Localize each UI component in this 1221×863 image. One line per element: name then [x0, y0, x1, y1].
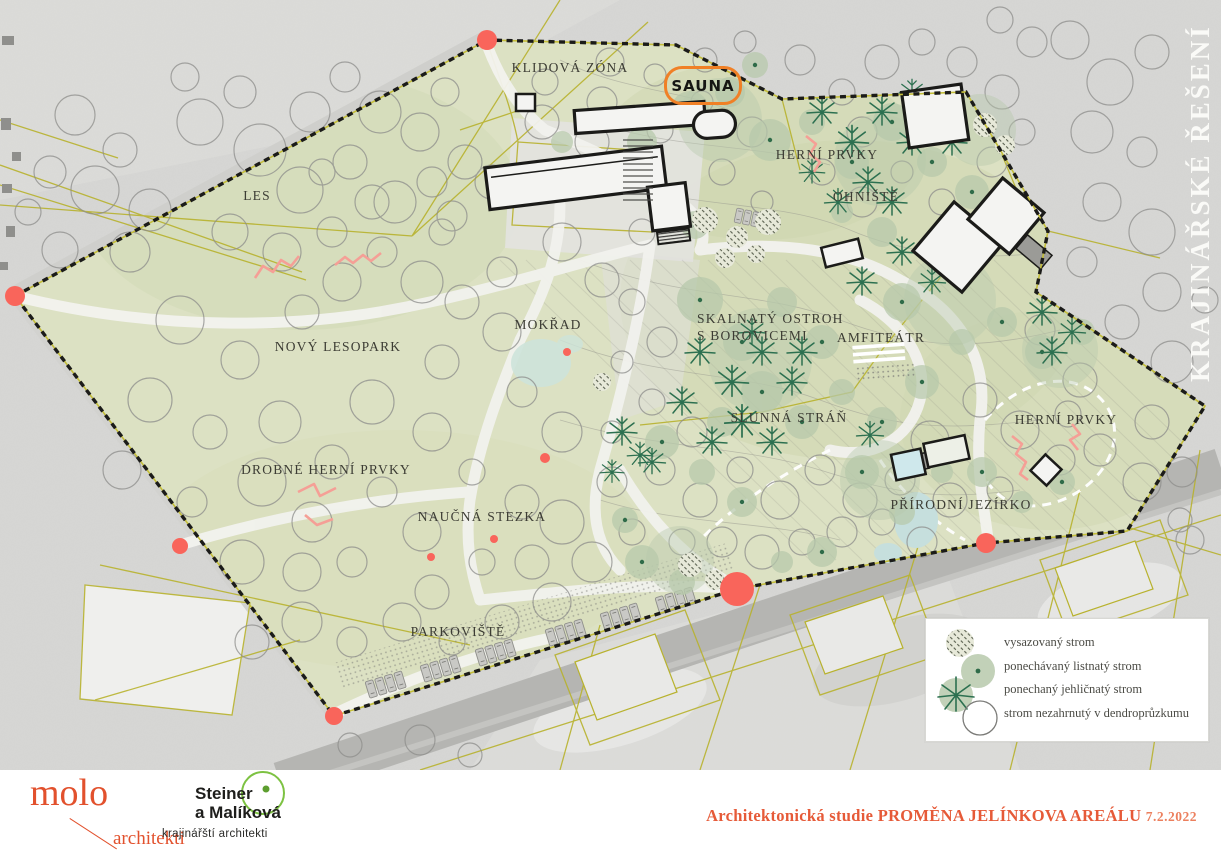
project-date: 7.2.2022	[1146, 809, 1197, 824]
label-ohniste: OHNIŠTĚ	[833, 189, 899, 205]
label-herni-prvky-right: HERNÍ PRVKY	[1015, 412, 1118, 428]
molo-logo-name: molo	[30, 774, 108, 812]
planted-tree-icon	[946, 629, 974, 657]
legend-item-coniferous: ponechaný jehličnatý strom	[1004, 682, 1142, 697]
label-prirodni-jezirko: PŘÍRODNÍ JEZÍRKO	[890, 497, 1031, 513]
label-skalnaty-ostroh-line2: S BOROVICEMI	[697, 328, 808, 344]
label-skalnaty-ostroh-line1: SKALNATÝ OSTROH	[697, 311, 844, 327]
label-amfiteatr: AMFITEÁTR	[837, 330, 925, 346]
site-plan-page: KLIDOVÁ ZÓNA HERNÍ PRVKY OHNIŠTĚ LES NOV…	[0, 0, 1221, 863]
project-title: Architektonická studie PROMĚNA JELÍNKOVA…	[706, 806, 1197, 826]
footer: molo architekti Steiner a Malíková kraji…	[0, 770, 1221, 863]
sauna-badge: SAUNA	[664, 66, 742, 105]
project-title-prefix: Architektonická studie	[706, 806, 878, 825]
label-naucna-stezka: NAUČNÁ STEZKA	[418, 509, 546, 525]
steiner-logo-line1: Steiner	[195, 784, 253, 804]
steiner-malikova-logo: Steiner a Malíková krajinářští architekt…	[160, 770, 340, 860]
unsurveyed-tree-icon	[963, 701, 997, 735]
steiner-logo-subtitle: krajinářští architekti	[162, 828, 268, 840]
label-les: LES	[243, 188, 271, 204]
molo-logo-line	[69, 818, 117, 849]
legend-item-planted: vysazovaný strom	[1004, 635, 1095, 650]
legend: vysazovaný strom ponechávaný listnatý st…	[925, 618, 1209, 742]
legend-item-deciduous: ponechávaný listnatý strom	[1004, 659, 1141, 674]
legend-icons	[934, 625, 1000, 737]
label-slunna-stran: SLUNNÁ STRÁŇ	[731, 410, 848, 426]
label-mokrad: MOKŘAD	[514, 317, 581, 333]
label-drobne-herni-prvky: DROBNÉ HERNÍ PRVKY	[241, 462, 411, 478]
project-title-name: PROMĚNA JELÍNKOVA AREÁLU	[878, 806, 1142, 825]
sauna-badge-label: SAUNA	[671, 77, 734, 95]
label-parkoviste: PARKOVIŠTĚ	[411, 624, 506, 640]
label-klidova-zona: KLIDOVÁ ZÓNA	[512, 60, 629, 76]
steiner-logo-line2: a Malíková	[195, 803, 281, 823]
label-novy-lesopark: NOVÝ LESOPARK	[275, 339, 402, 355]
legend-item-unsurveyed: strom nezahrnutý v dendroprůzkumu	[1004, 706, 1189, 721]
label-herni-prvky-top: HERNÍ PRVKY	[776, 147, 879, 163]
sheet-title-vertical: KRAJINÁŘSKÉ ŘEŠENÍ	[1185, 12, 1216, 382]
